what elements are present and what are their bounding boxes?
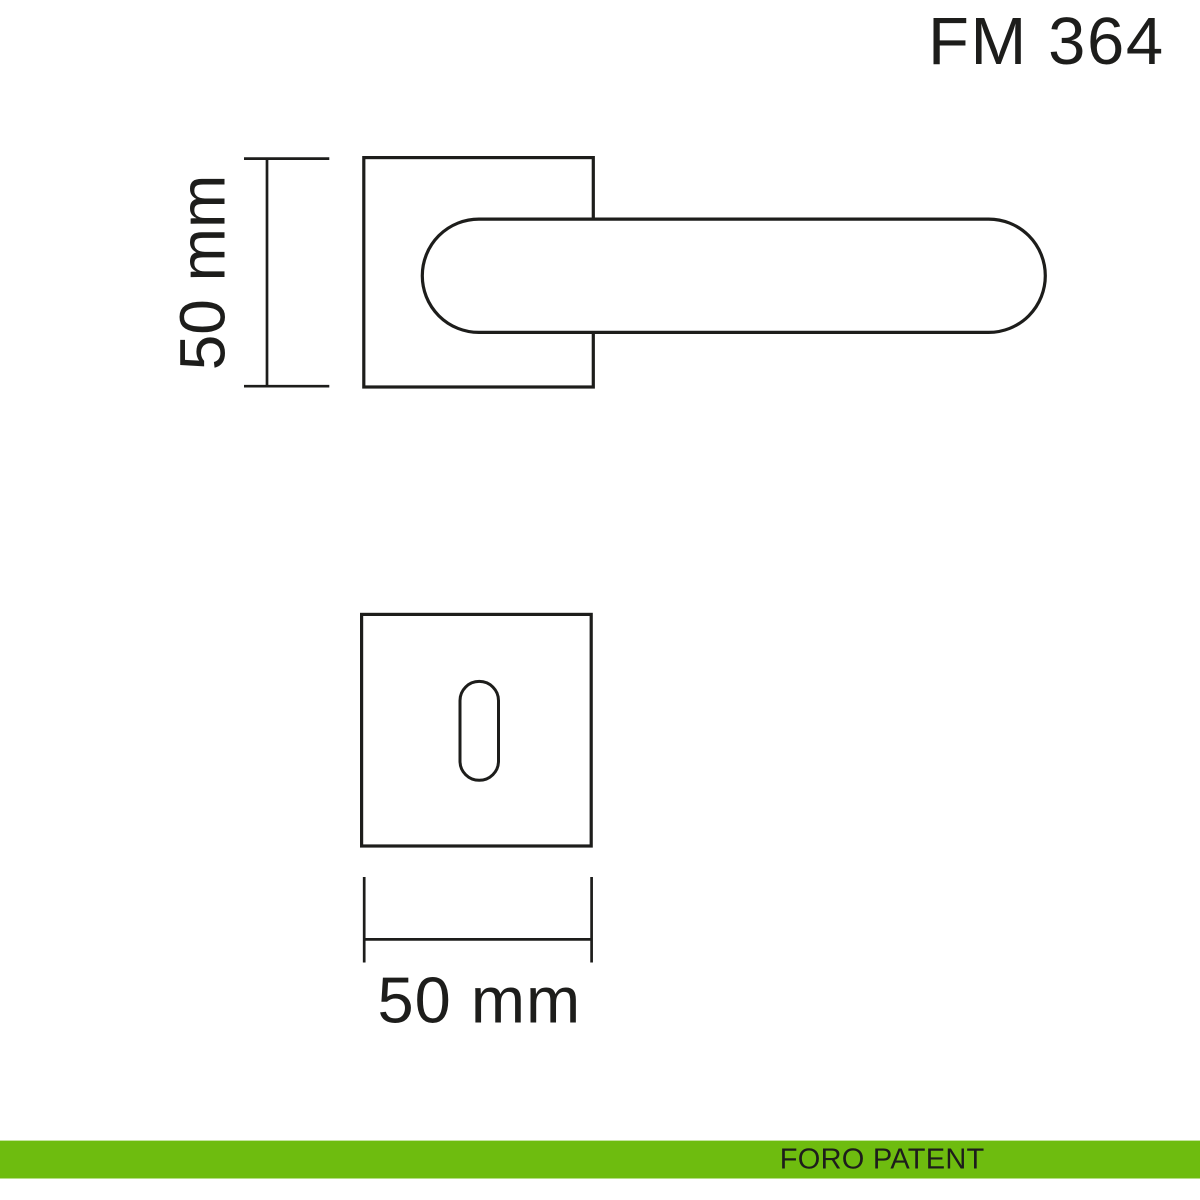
svg-text:FORO PATENT: FORO PATENT	[780, 1144, 985, 1176]
svg-text:50 mm: 50 mm	[378, 964, 582, 1037]
svg-text:50 mm: 50 mm	[167, 175, 239, 371]
svg-text:FM 364: FM 364	[928, 4, 1165, 79]
